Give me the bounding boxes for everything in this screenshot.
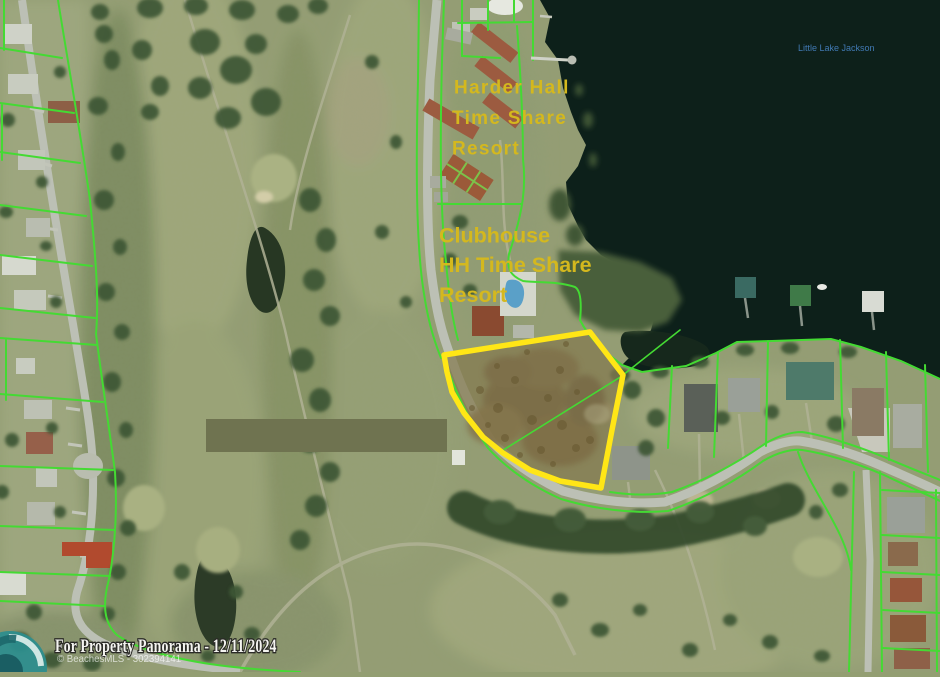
- svg-text:Little Lake Jackson: Little Lake Jackson: [798, 43, 875, 53]
- svg-text:Resort: Resort: [439, 283, 507, 307]
- svg-text:HH Time Share: HH Time Share: [439, 253, 592, 277]
- svg-text:Resort: Resort: [452, 139, 520, 160]
- svg-text:Harder Hall: Harder Hall: [454, 78, 570, 99]
- svg-text:Clubhouse: Clubhouse: [439, 224, 550, 248]
- svg-text:Time Share: Time Share: [452, 108, 567, 129]
- svg-text:© BeachesMLS - 302394141: © BeachesMLS - 302394141: [57, 654, 181, 665]
